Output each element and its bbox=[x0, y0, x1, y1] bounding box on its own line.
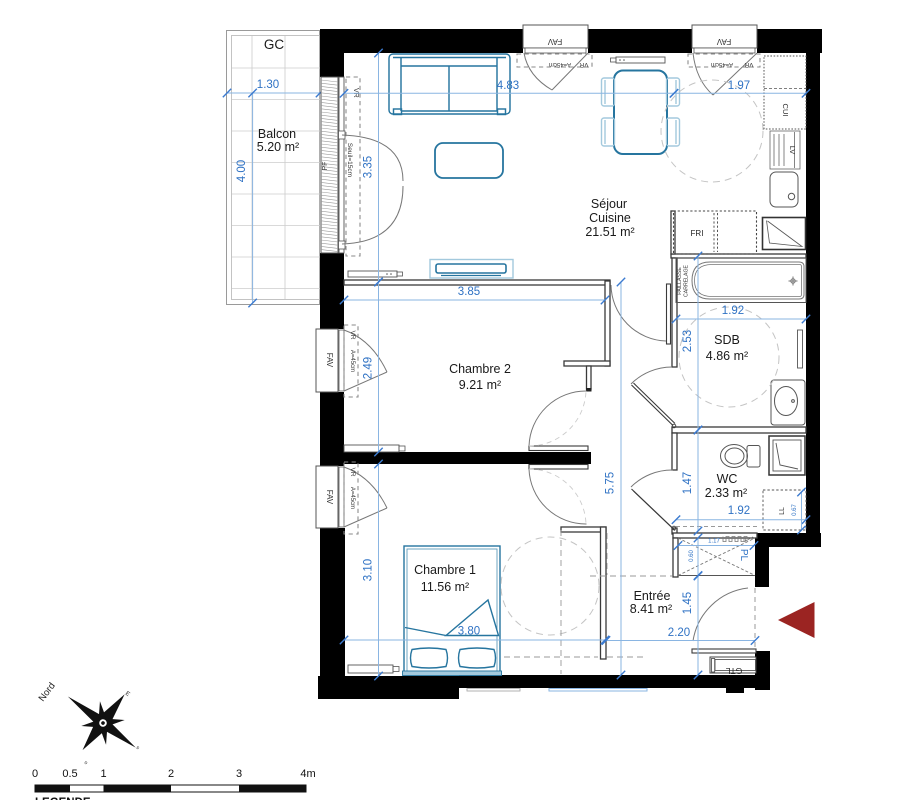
svg-text:GC: GC bbox=[264, 37, 285, 52]
svg-text:LL: LL bbox=[779, 507, 786, 515]
svg-text:PF: PF bbox=[322, 162, 329, 171]
svg-text:3.85: 3.85 bbox=[458, 286, 480, 298]
svg-text:Cuisine: Cuisine bbox=[589, 211, 631, 225]
svg-text:0.60: 0.60 bbox=[689, 550, 695, 562]
svg-text:1.97: 1.97 bbox=[728, 80, 750, 92]
svg-text:0.67: 0.67 bbox=[792, 504, 798, 516]
svg-text:2.53: 2.53 bbox=[682, 330, 694, 352]
svg-text:11.56 m²: 11.56 m² bbox=[421, 580, 469, 594]
svg-text:SDB: SDB bbox=[714, 333, 740, 347]
svg-text:3.10: 3.10 bbox=[363, 559, 375, 581]
svg-text:1: 1 bbox=[100, 768, 106, 780]
svg-text:0: 0 bbox=[32, 768, 38, 780]
svg-text:2.33 m²: 2.33 m² bbox=[705, 486, 747, 500]
svg-text:1.47: 1.47 bbox=[682, 472, 694, 494]
svg-text:1.17: 1.17 bbox=[708, 539, 720, 545]
svg-text:PAILLASSE: PAILLASSE bbox=[677, 267, 683, 295]
svg-text:5.20 m²: 5.20 m² bbox=[257, 140, 299, 154]
svg-text:Chambre 1: Chambre 1 bbox=[414, 563, 476, 577]
svg-text:FRI: FRI bbox=[691, 229, 704, 238]
svg-text:2: 2 bbox=[168, 768, 174, 780]
svg-text:9.21 m²: 9.21 m² bbox=[459, 378, 501, 392]
svg-text:VR: VR bbox=[349, 467, 356, 476]
svg-text:Séjour: Séjour bbox=[591, 197, 627, 211]
svg-text:A=45cm: A=45cm bbox=[711, 61, 733, 67]
svg-text:Balcon: Balcon bbox=[258, 127, 296, 141]
svg-text:VR: VR bbox=[349, 330, 356, 339]
svg-text:21.51 m²: 21.51 m² bbox=[585, 225, 634, 239]
svg-text:WC: WC bbox=[717, 472, 738, 486]
svg-text:FAV: FAV bbox=[547, 37, 562, 46]
svg-text:3: 3 bbox=[236, 768, 242, 780]
svg-text:A=45cm: A=45cm bbox=[349, 350, 355, 372]
svg-text:4.86 m²: 4.86 m² bbox=[706, 349, 748, 363]
svg-text:5.75: 5.75 bbox=[605, 472, 617, 494]
svg-text:Entrée: Entrée bbox=[634, 589, 671, 603]
svg-text:8.41 m²: 8.41 m² bbox=[630, 602, 672, 616]
svg-text:FAV: FAV bbox=[716, 37, 731, 46]
svg-text:3.80: 3.80 bbox=[458, 626, 480, 638]
svg-text:A=45cm: A=45cm bbox=[349, 487, 355, 509]
svg-text:Chambre 2: Chambre 2 bbox=[449, 362, 511, 376]
svg-text:2.49: 2.49 bbox=[363, 357, 375, 379]
svg-text:LV: LV bbox=[788, 146, 797, 155]
svg-text:0.5: 0.5 bbox=[62, 768, 77, 780]
svg-text:4m: 4m bbox=[300, 768, 315, 780]
svg-text:4.00: 4.00 bbox=[236, 160, 248, 182]
svg-text:CARRELAGE: CARRELAGE bbox=[684, 264, 690, 297]
svg-text:VR: VR bbox=[744, 61, 753, 68]
svg-text:1.30: 1.30 bbox=[257, 79, 279, 91]
svg-text:4.83: 4.83 bbox=[497, 80, 519, 92]
svg-text:VR: VR bbox=[579, 61, 588, 68]
svg-text:GTL: GTL bbox=[725, 666, 742, 676]
svg-text:Seuil=15cm: Seuil=15cm bbox=[346, 143, 353, 177]
svg-text:2.20: 2.20 bbox=[668, 627, 690, 639]
svg-text:1.92: 1.92 bbox=[728, 505, 750, 517]
svg-text:1.92: 1.92 bbox=[722, 305, 744, 317]
svg-text:A=45cm: A=45cm bbox=[549, 61, 571, 67]
svg-text:PL: PL bbox=[738, 549, 749, 562]
svg-text:1.45: 1.45 bbox=[682, 592, 694, 614]
svg-text:FAV: FAV bbox=[325, 353, 334, 368]
svg-text:3.35: 3.35 bbox=[363, 156, 375, 178]
svg-text:CUI: CUI bbox=[781, 104, 790, 117]
svg-text:FAV: FAV bbox=[325, 490, 334, 505]
